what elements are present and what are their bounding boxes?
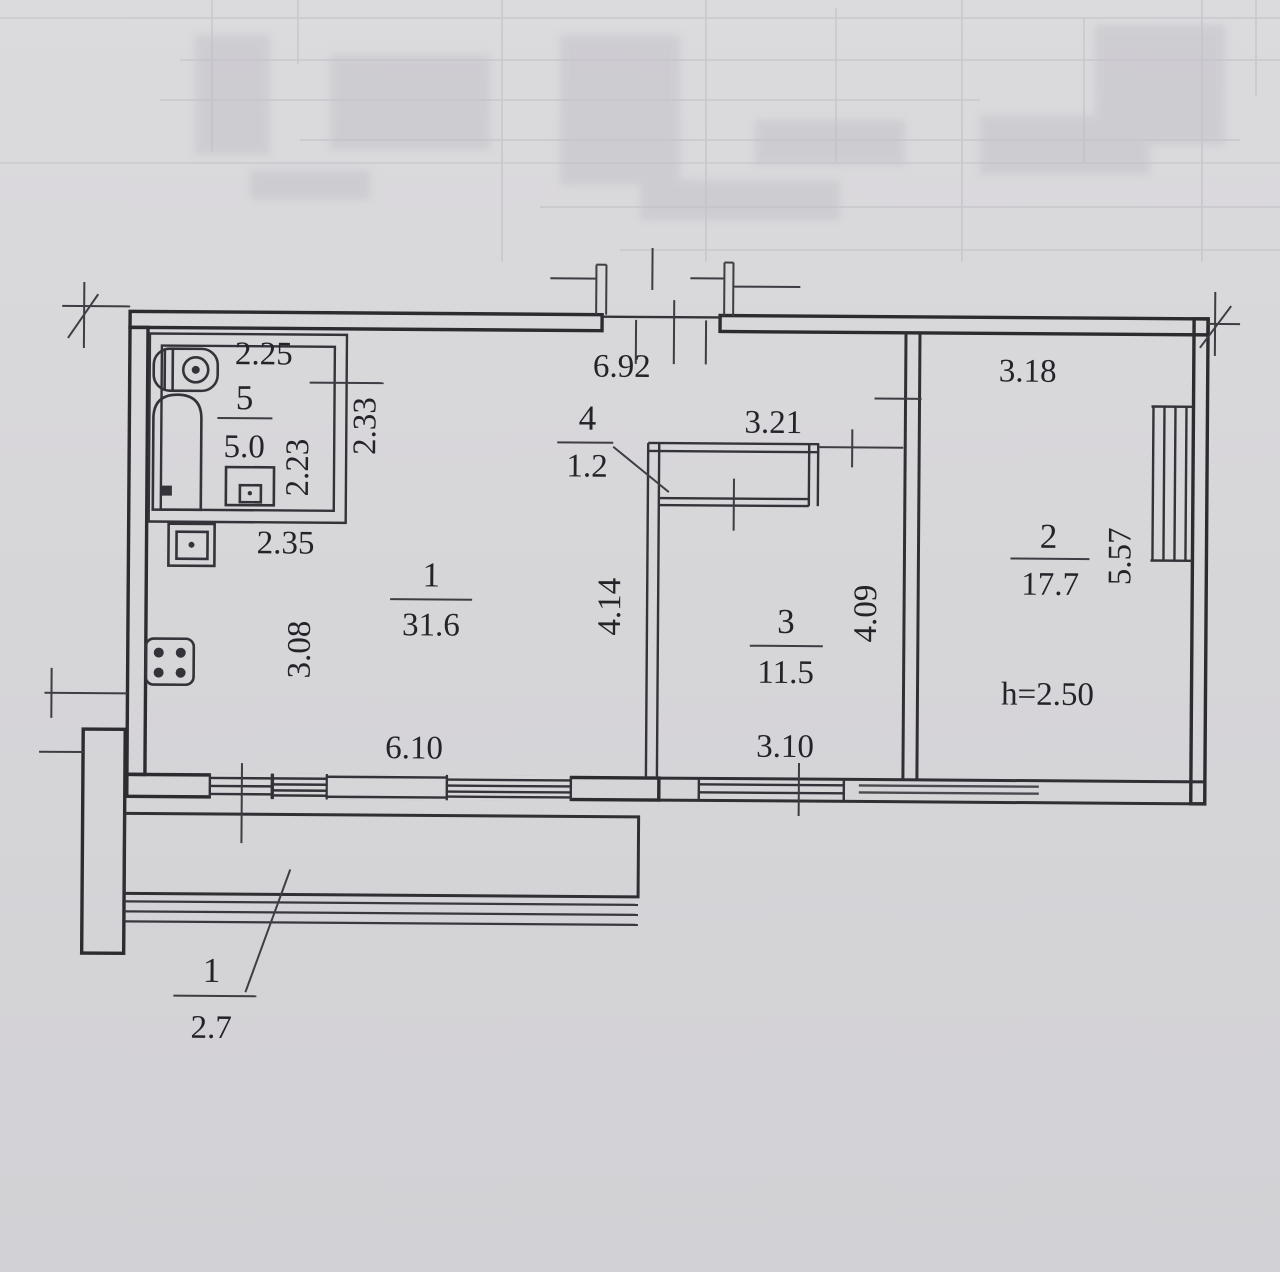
dim-bathroom-depth-outer: 2.33 (347, 397, 383, 455)
room-1-fraction-bar (390, 599, 472, 600)
balcony-fraction-bar (173, 996, 256, 997)
room-1-area: 31.6 (402, 607, 460, 643)
room-5-number: 5 (236, 378, 254, 417)
room-1-number: 1 (422, 555, 440, 594)
room-4-area: 1.2 (566, 448, 608, 484)
room-5-area: 5.0 (223, 429, 265, 465)
dim-room2-width: 3.18 (999, 353, 1057, 389)
ceiling-height-label: h=2.50 (1001, 676, 1094, 713)
room-3-number: 3 (777, 602, 795, 641)
dim-room1-width: 6.10 (385, 730, 443, 766)
dim-room1-depth-right: 4.14 (592, 578, 628, 636)
balcony-number: 1 (203, 951, 221, 990)
dim-closet-bay-width: 3.21 (744, 405, 802, 441)
room-2-fraction-bar (1010, 559, 1089, 560)
dim-room3-depth: 4.09 (848, 585, 884, 643)
window-3 (447, 775, 571, 802)
window-2 (273, 773, 327, 799)
dim-room3-width: 3.10 (756, 729, 814, 765)
room-2-area: 17.7 (1021, 567, 1079, 603)
dim-corridor-width: 6.92 (593, 349, 651, 385)
room-3-area: 11.5 (757, 655, 814, 691)
dim-bathroom-depth-inner: 2.23 (280, 439, 316, 497)
room-3-fraction-bar (750, 646, 823, 647)
dim-below-bathroom: 2.35 (257, 525, 315, 561)
entrance-opening-lintel (602, 317, 720, 318)
room-4-number: 4 (579, 398, 597, 437)
room-2-number: 2 (1040, 517, 1058, 556)
balcony-area: 2.7 (190, 1010, 232, 1046)
balcony-door-opening (327, 774, 447, 801)
dim-bathroom-width: 2.25 (235, 336, 293, 372)
dim-room1-depth-left: 3.08 (282, 621, 318, 679)
dim-room2-depth: 5.57 (1102, 527, 1138, 585)
floor-plan-canvas: 5 5.0 1 31.6 4 1.2 3 11.5 2 17.7 h=2.50 … (0, 0, 1280, 1272)
scanned-floor-plan-sheet: 5 5.0 1 31.6 4 1.2 3 11.5 2 17.7 h=2.50 … (0, 0, 1280, 1272)
